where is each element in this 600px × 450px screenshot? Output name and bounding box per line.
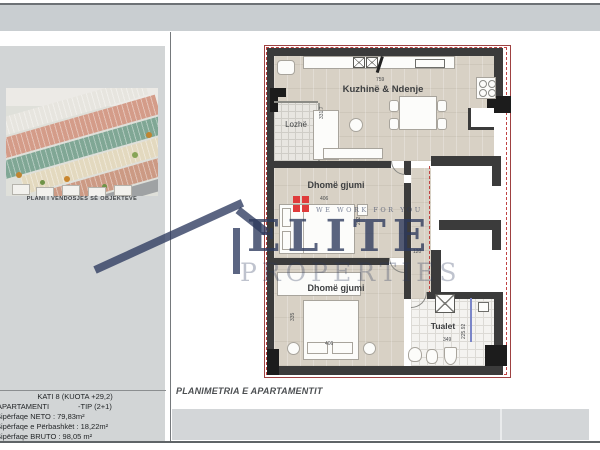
burner (488, 80, 496, 88)
shower (435, 294, 455, 313)
core-wall (492, 230, 501, 250)
pillow (282, 208, 291, 227)
sink (426, 349, 438, 364)
pillow (282, 231, 291, 250)
wall-segment (404, 161, 411, 175)
tree (40, 180, 45, 185)
tree (132, 152, 138, 158)
wall-segment (305, 161, 391, 168)
apartment-label: APARTAMENTI (0, 402, 49, 411)
small-building (62, 185, 80, 196)
chair (437, 100, 447, 112)
boiler (478, 302, 489, 312)
room-label-bedroom1: Dhomë gjumi (281, 180, 391, 190)
floor-plan: Kuzhinë & Ndenje Lozhë Dhomë gjumi Dhomë… (263, 44, 513, 380)
floor-line: KATI 8 (KUOTA +29,2) (0, 392, 150, 401)
coffee-table (349, 118, 363, 132)
armchair (277, 60, 295, 75)
nightstand (287, 342, 300, 355)
drawing-title: PLANIMETRIA E APARTAMENTIT (176, 386, 323, 396)
wall-segment (269, 48, 501, 56)
pillow (332, 342, 353, 354)
burner (488, 89, 496, 97)
page-bottom-edge (0, 441, 600, 443)
small-building (114, 185, 132, 196)
washbasin (408, 347, 422, 362)
chair (437, 118, 447, 130)
dining-table (399, 96, 437, 130)
site-plan-image (6, 88, 158, 196)
nightstand (363, 342, 376, 355)
shared-area: Sipërfaqe e Përbashkët : 18,22m² (0, 422, 108, 431)
burner (479, 89, 487, 97)
dim-bedroom2-width: 406 (325, 341, 333, 347)
panel-divider-line (170, 32, 171, 441)
site-plan-buildings (6, 88, 158, 196)
page-top-bar (0, 5, 600, 31)
wall-segment (267, 366, 503, 375)
loggia-window-line (274, 101, 318, 103)
kitchen-appliance (415, 59, 445, 68)
watermark-house-wall (233, 228, 240, 274)
dim-loggia-height: 331.7 (319, 106, 325, 119)
dimension-line-blue (470, 298, 472, 342)
toilet-bowl (444, 347, 457, 365)
dim-toilet-height: 225.92 (461, 324, 467, 339)
small-building (12, 184, 30, 195)
core-boundary-dashed (429, 166, 430, 299)
gross-area: Sipërfaqe BRUTO : 98,05 m² (0, 432, 92, 441)
column (485, 345, 507, 366)
apartment-type: -TIP (2+1) (78, 402, 112, 411)
dim-kitchen-width: 759 (376, 77, 384, 83)
title-block-top-rule (0, 390, 166, 391)
sheet-page: { "left_panel": { "image_caption": "PLAN… (0, 0, 600, 450)
tree (64, 176, 70, 182)
core-wall (431, 156, 501, 166)
dim-hall-width: 120 (413, 249, 421, 255)
wall-segment (404, 183, 411, 265)
column (267, 349, 279, 375)
wall-segment (267, 258, 389, 265)
tree (16, 172, 22, 178)
chair (389, 118, 399, 130)
blanket-line (303, 205, 304, 253)
small-building (88, 187, 106, 196)
dim-bedroom1-width: 406 (320, 196, 328, 202)
wall-segment (404, 258, 411, 299)
chair (389, 100, 399, 112)
small-building (36, 187, 54, 196)
burner (479, 80, 487, 88)
kitchen-sink (366, 57, 378, 68)
kitchen-sink (353, 57, 365, 68)
title-block-bar (172, 409, 589, 440)
dim-bedroom2-height: 335 (290, 313, 296, 321)
nightstand (357, 204, 368, 216)
room-label-bedroom2: Dhomë gjumi (281, 283, 391, 293)
core-wall (492, 166, 501, 186)
core-wall (431, 250, 441, 299)
room-label-kitchen-living: Kuzhinë & Ndenje (303, 84, 463, 95)
title-block-bar-divider (500, 409, 502, 440)
dim-bedroom1-depth: 202 (356, 217, 362, 225)
core-wall (439, 220, 501, 230)
dim-toilet-width: 349 (443, 337, 451, 343)
net-area: Sipërfaqe NETO : 79,83m² (0, 412, 85, 421)
site-plan-caption: PLANI I VENDOSJES SË OBJEKTEVE (4, 196, 160, 202)
tv-bench (323, 148, 383, 159)
column (270, 88, 278, 112)
tree (146, 132, 152, 138)
closet-nook (468, 108, 494, 130)
wall-segment (267, 161, 305, 168)
room-label-loggia: Lozhë (273, 120, 319, 129)
